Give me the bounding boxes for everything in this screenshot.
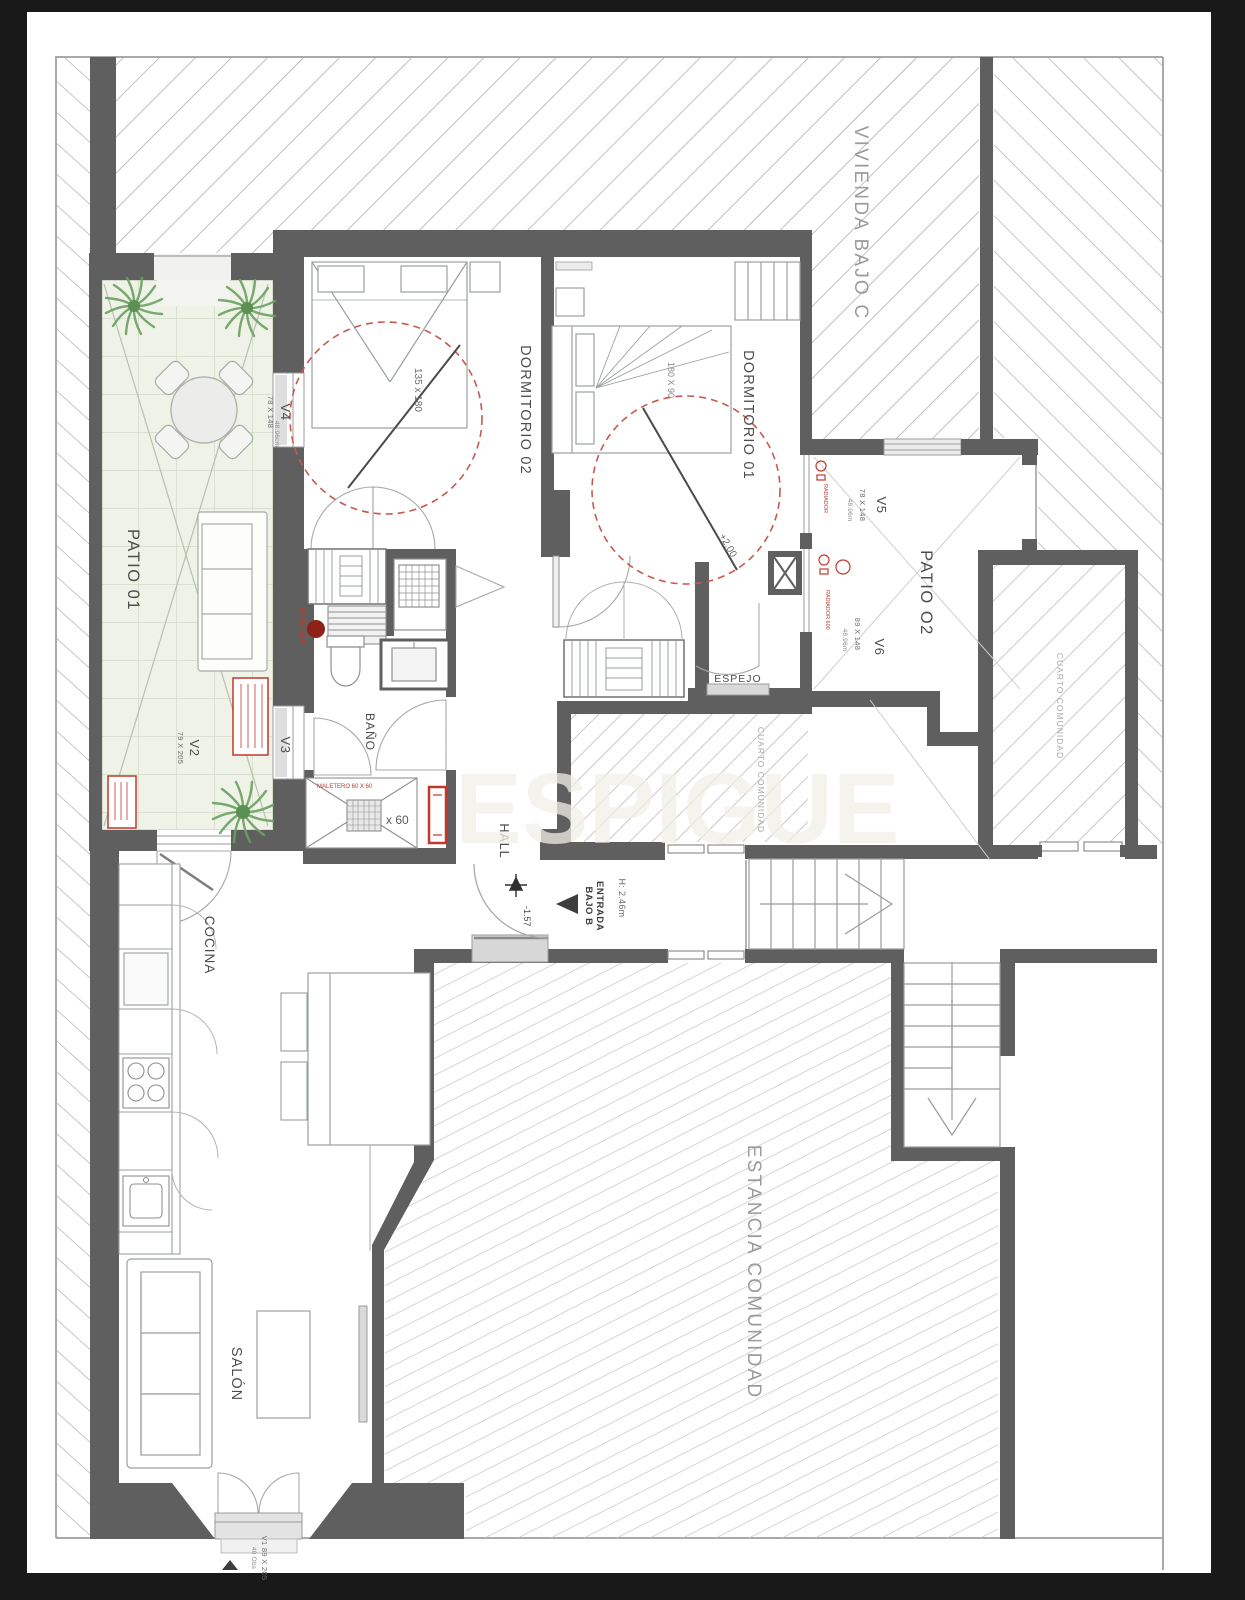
svg-text:78 X 148: 78 X 148: [858, 489, 867, 521]
svg-text:V1 89 X 205: V1 89 X 205: [260, 1536, 269, 1581]
svg-text:180 X 90: 180 X 90: [666, 362, 676, 398]
svg-text:PATIO O2: PATIO O2: [917, 550, 935, 636]
svg-text:COCINA: COCINA: [202, 916, 217, 975]
svg-text:VIVIENDA BAJO C: VIVIENDA BAJO C: [850, 126, 871, 321]
svg-text:48.96m: 48.96m: [846, 499, 853, 522]
svg-text:BAÑO: BAÑO: [363, 713, 377, 751]
svg-text:89 X 148: 89 X 148: [853, 618, 862, 650]
svg-text:MALETERO 60 X 60: MALETERO 60 X 60: [317, 784, 373, 790]
svg-text:V6: V6: [872, 639, 887, 656]
svg-text:PATIO 01: PATIO 01: [124, 529, 142, 611]
svg-text:ESPIGUE: ESPIGUE: [455, 753, 900, 865]
svg-text:H: 2.46m: H: 2.46m: [617, 879, 627, 918]
svg-text:x 60: x 60: [386, 813, 409, 827]
svg-text:135 x 180: 135 x 180: [412, 368, 423, 412]
svg-text:40 Obs: 40 Obs: [250, 1547, 257, 1570]
svg-text:V4: V4: [278, 404, 293, 421]
svg-text:79 X 205: 79 X 205: [176, 732, 185, 764]
svg-text:RADIADOR: RADIADOR: [822, 484, 828, 513]
svg-text:ESTANCIA COMUNIDAD: ESTANCIA COMUNIDAD: [743, 1145, 764, 1400]
svg-text:BAJO B: BAJO B: [583, 887, 594, 926]
svg-text:RADIADOR: RADIADOR: [298, 607, 305, 644]
svg-text:RADIADOR 600: RADIADOR 600: [824, 590, 830, 630]
svg-text:V5: V5: [874, 497, 889, 514]
svg-text:48.96cm: 48.96cm: [273, 421, 280, 447]
svg-text:SALÓN: SALÓN: [228, 1347, 245, 1401]
svg-text:V2: V2: [187, 740, 202, 757]
svg-text:ENTRADA: ENTRADA: [594, 881, 605, 931]
svg-text:CUARTO COMUNIDAD: CUARTO COMUNIDAD: [1055, 653, 1065, 759]
svg-text:DORMITORIO 02: DORMITORIO 02: [517, 345, 533, 475]
svg-text:DORMITORIO 01: DORMITORIO 01: [740, 350, 756, 480]
svg-text:V3: V3: [278, 737, 293, 754]
svg-text:48.96m: 48.96m: [841, 629, 848, 652]
svg-text:ESPEJO: ESPEJO: [714, 673, 761, 685]
svg-text:-1.57: -1.57: [522, 906, 532, 927]
